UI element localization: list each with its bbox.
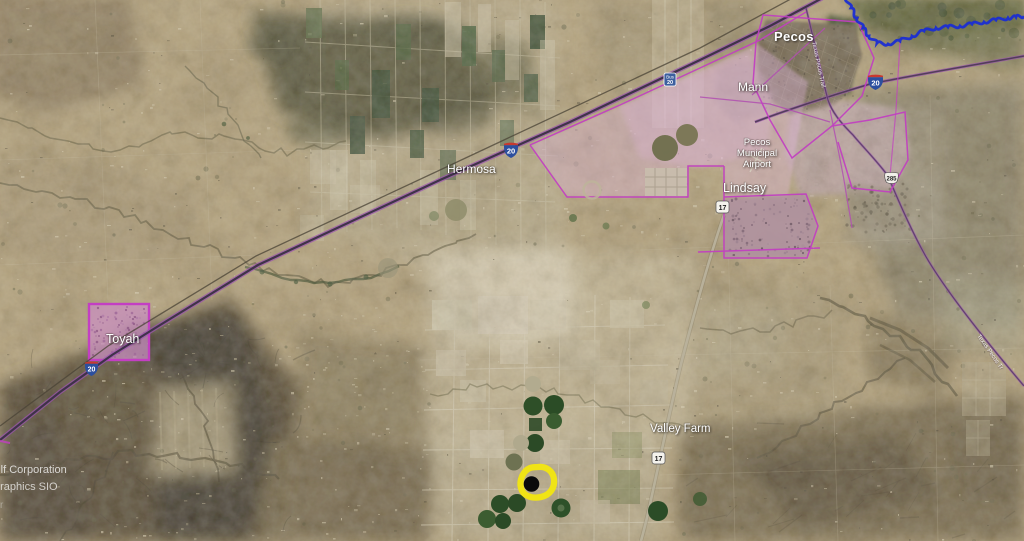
svg-text:20: 20: [667, 80, 673, 86]
svg-text:Pecos: Pecos: [744, 137, 771, 148]
svg-text:Hermosa: Hermosa: [447, 162, 496, 176]
svg-text:Mann: Mann: [738, 80, 768, 94]
svg-text:17: 17: [719, 205, 727, 212]
svg-text:Pecos: Pecos: [774, 29, 814, 44]
svg-text:20: 20: [507, 147, 515, 156]
svg-text:Airport: Airport: [743, 159, 771, 170]
svg-text:17: 17: [655, 456, 663, 463]
svg-text:Lindsay: Lindsay: [723, 181, 767, 195]
svg-text:20: 20: [88, 367, 96, 374]
svg-text:Toyah: Toyah: [106, 332, 139, 346]
svg-text:graphics SIO: graphics SIO: [0, 481, 58, 493]
svg-text:285: 285: [886, 177, 897, 183]
svg-text:Bus: Bus: [666, 75, 675, 80]
svg-text:Gulf Corporation: Gulf Corporation: [0, 464, 67, 476]
svg-text:Municipal: Municipal: [737, 148, 777, 159]
svg-text:Valley Farm: Valley Farm: [650, 423, 711, 435]
svg-text:20: 20: [871, 79, 879, 88]
